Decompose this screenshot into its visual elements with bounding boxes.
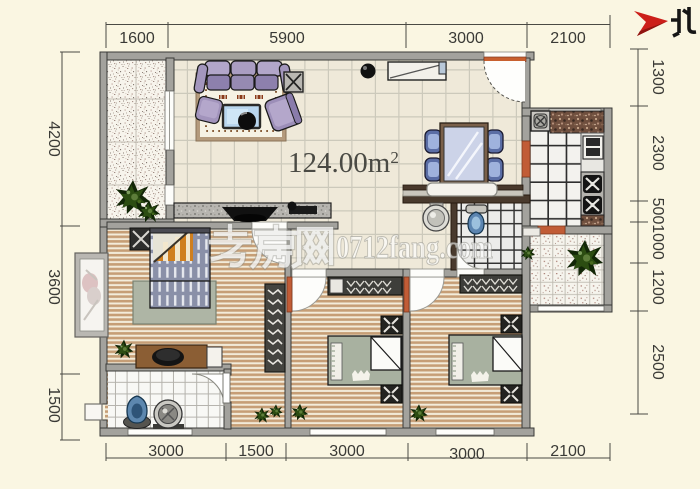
- svg-text:0712fang.com: 0712fang.com: [336, 230, 493, 266]
- svg-text:1300: 1300: [649, 59, 666, 95]
- svg-text:4200: 4200: [45, 121, 62, 157]
- svg-text:124.00m2: 124.00m2: [288, 147, 399, 179]
- svg-text:1200: 1200: [649, 269, 666, 305]
- svg-text:2100: 2100: [550, 443, 586, 460]
- svg-text:2100: 2100: [550, 30, 586, 47]
- svg-text:2300: 2300: [649, 135, 666, 171]
- svg-text:500: 500: [649, 198, 666, 225]
- svg-text:1600: 1600: [119, 30, 155, 47]
- svg-text:1500: 1500: [238, 443, 274, 460]
- svg-text:1000: 1000: [649, 224, 666, 260]
- svg-text:3000: 3000: [449, 446, 485, 463]
- svg-text:3000: 3000: [148, 443, 184, 460]
- svg-text:5900: 5900: [269, 30, 305, 47]
- svg-text:3600: 3600: [45, 269, 62, 305]
- svg-text:3000: 3000: [329, 443, 365, 460]
- svg-text:2500: 2500: [649, 344, 666, 380]
- svg-text:1500: 1500: [45, 387, 62, 423]
- svg-text:3000: 3000: [448, 30, 484, 47]
